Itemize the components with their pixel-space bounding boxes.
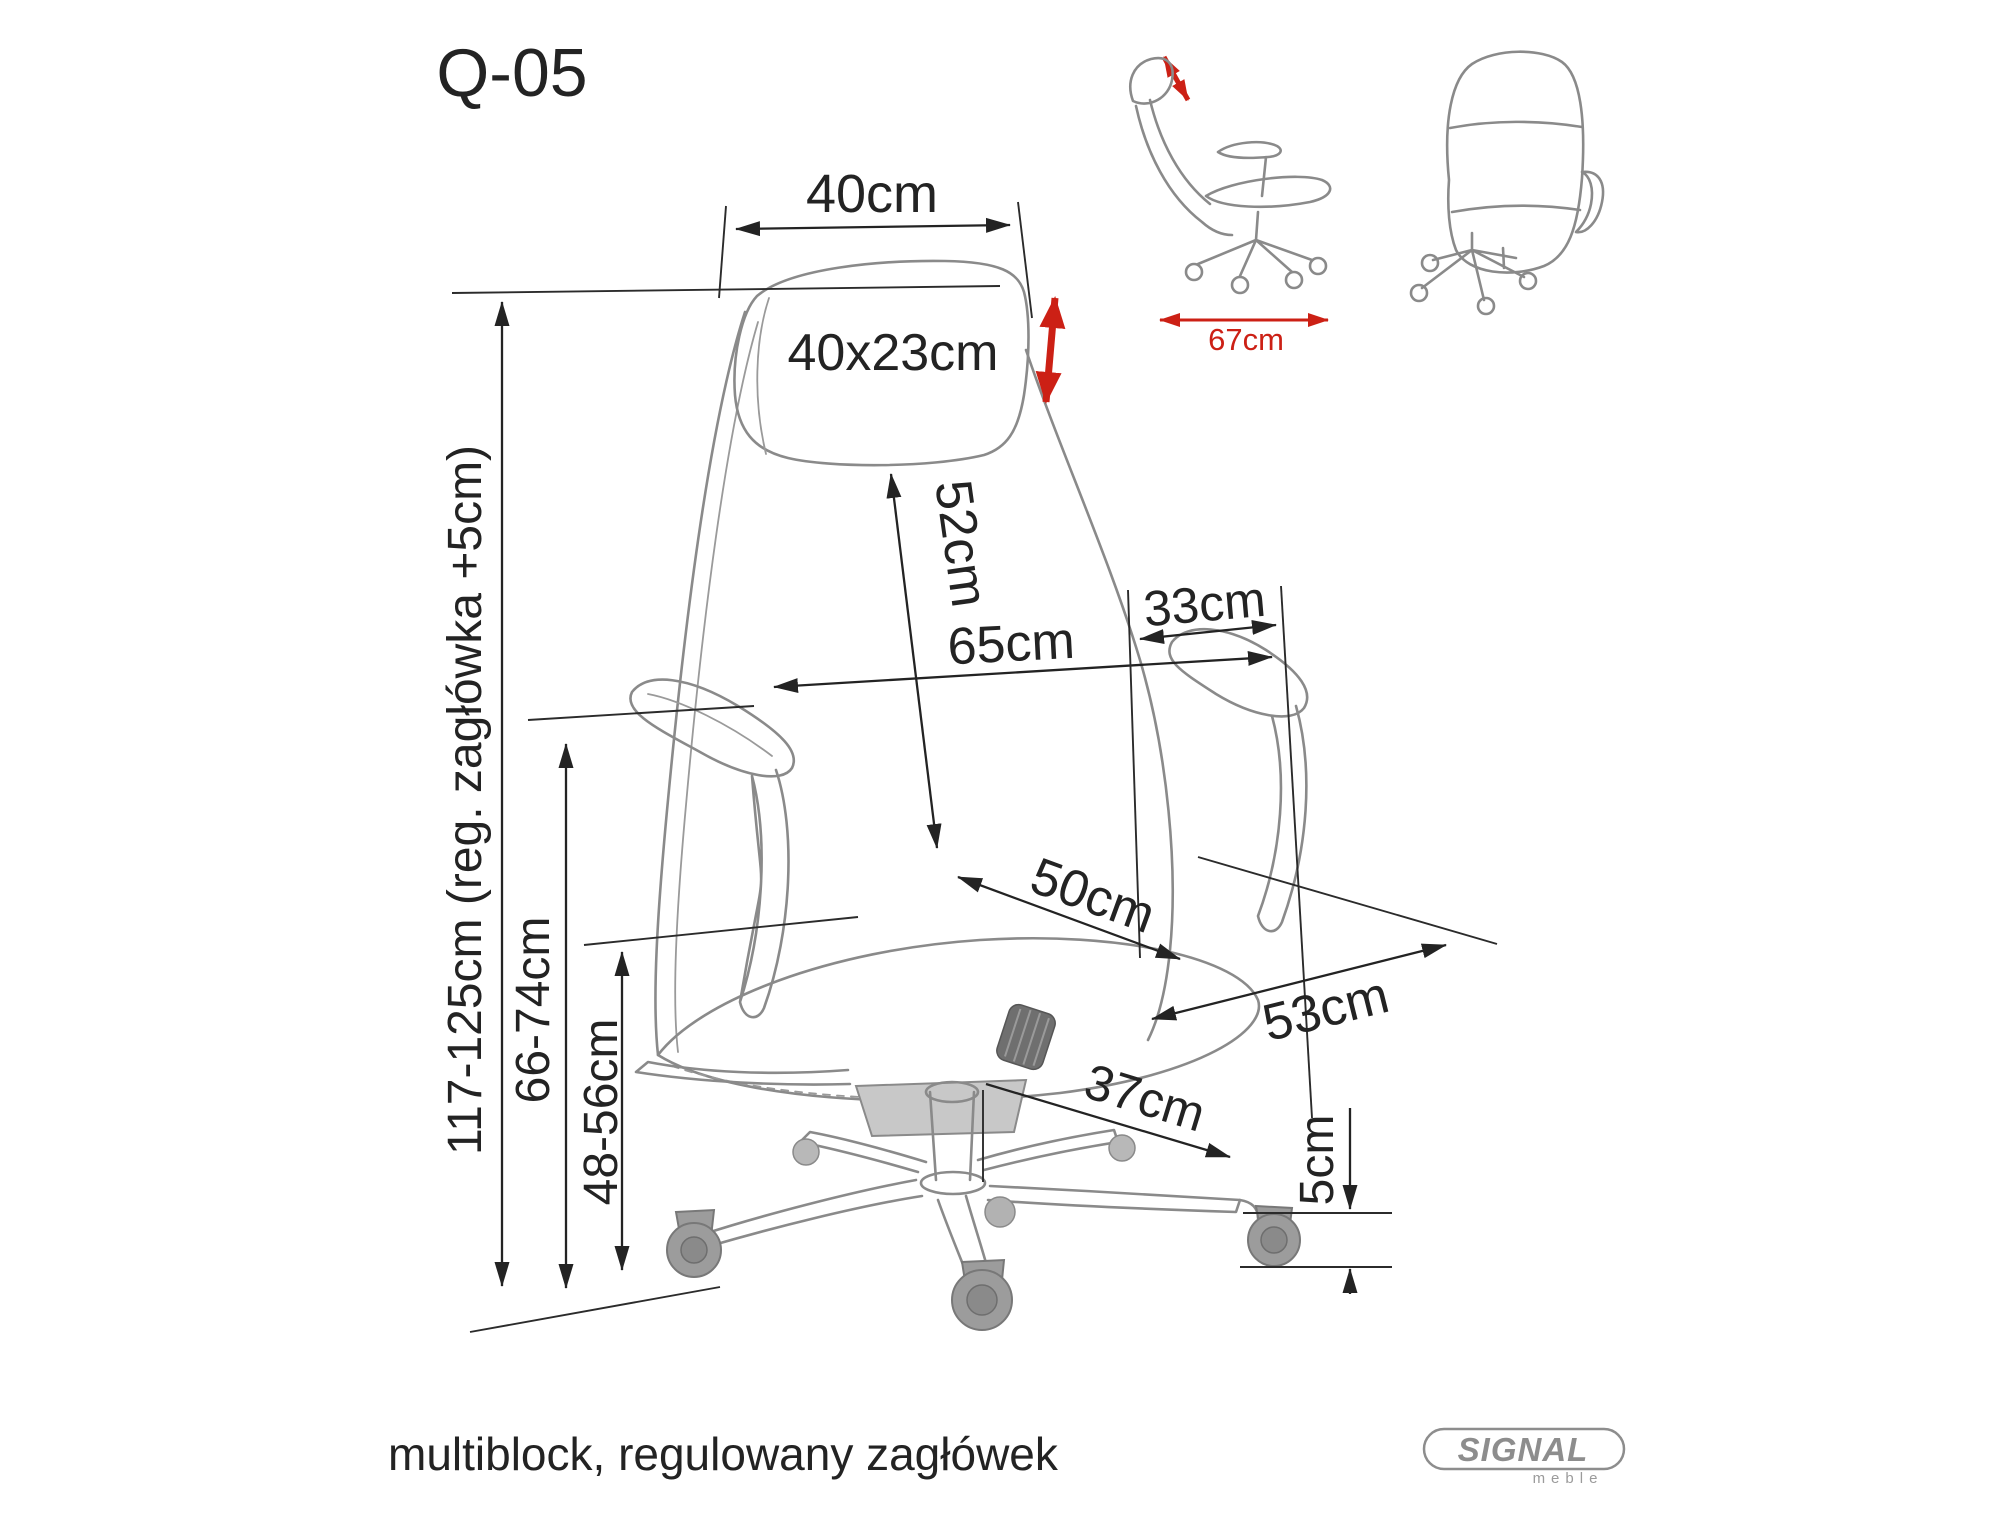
sideview-adjust-arrow [1164,57,1188,100]
rear-center-caster [985,1197,1015,1227]
backrest-outline [655,312,745,1055]
dim-armrest-height-label: 66-74cm [507,917,560,1104]
sideview-caster [1286,272,1302,288]
tension-knob [994,1002,1058,1072]
brand-logo: SIGNAL meble [1424,1429,1624,1487]
footer-note: multiblock, regulowany zagłówek [388,1428,1059,1480]
dim-40cm-line [736,225,1010,229]
left-armrest-pad [630,680,793,777]
logo-sub: meble [1533,1470,1604,1487]
dim-base-leg-label: 37cm [1078,1053,1211,1142]
sideview-seat [1206,177,1330,207]
dim-overall-depth-label: 67cm [1208,322,1284,357]
sideview-caster [1186,264,1202,280]
dim-armrest-depth-label: 33cm [1141,571,1268,637]
dim-seat-height-label: 48-56cm [575,1019,628,1206]
left-caster [667,1210,721,1277]
diagram-page: Q-05 40cm 40x23cm 52cm 65cm 33cm 50cm 53… [0,0,2000,1530]
ref-line-top [452,286,1000,293]
ref-line-seat-plane [1198,857,1497,944]
main-chair-drawing [630,261,1307,1330]
chair-dimension-diagram: Q-05 40cm 40x23cm 52cm 65cm 33cm 50cm 53… [0,0,2000,1530]
rear-right-caster [1109,1135,1135,1161]
dim-backrest-width-label: 65cm [946,612,1076,677]
backview-caster [1411,285,1427,301]
sideview-base [1198,240,1312,276]
left-armrest-pad-seam [648,694,772,756]
tilt-lever [636,1062,850,1085]
front-caster [952,1260,1012,1330]
dim-caster-height-label: 5cm [1291,1115,1344,1206]
sideview-caster [1232,277,1248,293]
tick-40-left [719,206,726,298]
backview-seam-upper [1450,122,1582,128]
rear-left-caster [793,1139,819,1165]
red-adjustment-arrows [1046,57,1328,402]
dim-seat-depth-label: 50cm [1023,847,1162,945]
dim-total-height-label: 117-125cm (reg. zagłówka +5cm) [439,445,492,1155]
backview-caster [1478,298,1494,314]
right-caster [1248,1206,1300,1266]
backview-caster [1520,273,1536,289]
dim-seat-width-label: 53cm [1257,966,1394,1053]
backview-seam-lower [1452,206,1580,212]
headrest-seam [757,298,769,454]
headrest-adjust-arrow [1046,298,1055,402]
dim-headrest-width-label: 40cm [806,164,938,224]
sideview-stem [1256,212,1258,240]
logo-brand: SIGNAL [1458,1431,1589,1468]
dim-headrest-size-label: 40x23cm [788,324,999,382]
back-view-thumbnail [1411,52,1603,314]
backview-backrest [1447,52,1583,273]
backrest-right-outline [1026,350,1173,1040]
page-title: Q-05 [436,35,587,111]
dim-backrest-diagonal-label: 52cm [923,477,998,611]
sideview-backrest [1136,100,1232,235]
backview-caster [1422,255,1438,271]
side-view-thumbnail [1130,58,1330,293]
ground-line-left [470,1287,720,1332]
ref-line-seat [584,917,858,945]
sideview-caster [1310,258,1326,274]
